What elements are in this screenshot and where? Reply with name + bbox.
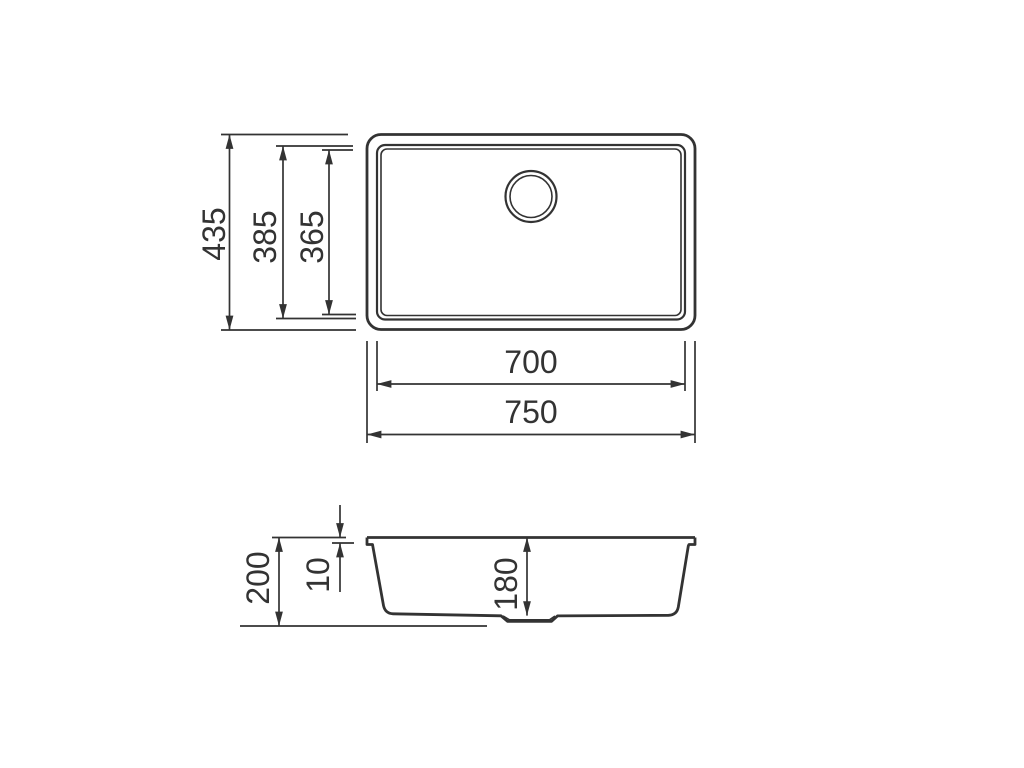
dimension-label: 365 [294,210,330,263]
dimension-label: 10 [300,557,336,593]
dimension-label: 200 [240,551,276,604]
top-view [367,135,695,330]
sink-dimension-drawing: 435 385 365 700 750 [0,0,1024,768]
drawing-page: 435 385 365 700 750 [0,0,1024,768]
dim-top-bowl-width: 700 [377,341,685,391]
section-basin-profile [367,538,695,622]
dimension-label: 385 [247,210,283,263]
dimension-label: 180 [488,557,524,610]
sink-outer-outline [367,135,695,330]
section-drain-recess-inner-line [503,616,555,620]
dim-top-bowl-height: 365 [294,150,356,315]
dimension-label: 700 [504,344,557,380]
basin-rim-inner-line [381,149,681,316]
dim-section-rim-thickness: 10 [300,505,354,593]
dim-section-bowl-depth: 180 [488,538,527,616]
dimension-label: 750 [504,394,557,430]
dimension-label: 435 [196,207,232,260]
drain-inner-circle [510,176,552,218]
drain-outer-circle [506,171,557,222]
drain [506,171,557,222]
